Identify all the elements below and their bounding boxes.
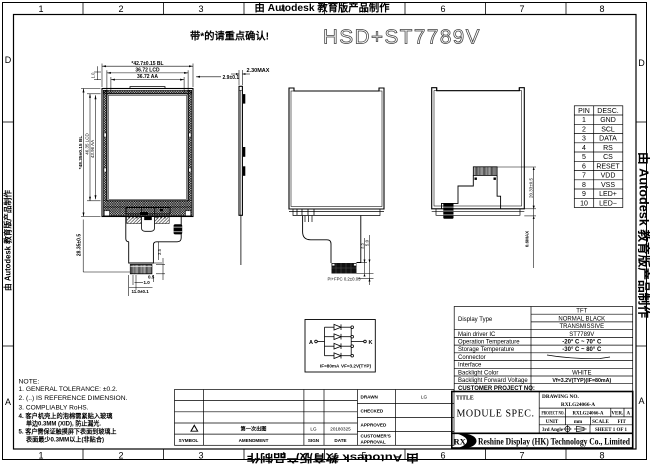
svg-text:RXLG24066-A: RXLG24066-A (573, 412, 604, 417)
svg-text:43.96 AA: 43.96 AA (90, 140, 95, 158)
svg-text:RX: RX (454, 436, 467, 446)
svg-text:A: A (5, 397, 11, 407)
svg-text:DRAWN: DRAWN (361, 395, 379, 400)
svg-text:第一次出图: 第一次出图 (241, 425, 267, 433)
svg-text:0.6MAX: 0.6MAX (525, 231, 530, 247)
svg-text:CS: CS (603, 154, 613, 161)
svg-text:6: 6 (440, 4, 445, 14)
svg-text:RXLG24066-A: RXLG24066-A (561, 402, 595, 408)
svg-text:APPROVED: APPROVED (361, 422, 387, 427)
svg-text:SCALE: SCALE (592, 420, 609, 425)
svg-text:CUSTOMER'S: CUSTOMER'S (361, 434, 391, 439)
svg-text:A: A (626, 412, 630, 417)
svg-text:3: 3 (198, 4, 203, 14)
svg-text:K: K (369, 340, 373, 346)
svg-text:9: 9 (582, 191, 586, 198)
svg-text:2.30MAX: 2.30MAX (247, 68, 270, 74)
svg-text:Display Type: Display Type (458, 317, 493, 323)
svg-text:7: 7 (519, 451, 524, 461)
svg-text:SIGN: SIGN (308, 438, 320, 443)
svg-text:11.0±0.1: 11.0±0.1 (132, 289, 150, 294)
svg-text:3: 3 (582, 136, 586, 143)
svg-text:-30° C ~ 80° C: -30° C ~ 80° C (562, 347, 602, 353)
svg-text:Reshine Display (HK) Technolog: Reshine Display (HK) Technology Co., Lim… (478, 436, 630, 446)
svg-text:3.5: 3.5 (157, 248, 162, 255)
svg-text:NORMAL BLACK: NORMAL BLACK (558, 316, 605, 322)
svg-text:表面最少0.3MM以上(非贴合): 表面最少0.3MM以上(非贴合) (26, 434, 104, 443)
svg-text:由 Autodesk 教育版产品制作: 由 Autodesk 教育版产品制作 (255, 1, 390, 14)
svg-text:1.0: 1.0 (91, 72, 96, 78)
svg-text:由 Autodesk 教育版产品制作: 由 Autodesk 教育版产品制作 (246, 451, 419, 464)
svg-text:mm: mm (574, 420, 583, 425)
svg-text:8: 8 (599, 4, 604, 14)
svg-text:46.35 LCD: 46.35 LCD (85, 132, 90, 154)
svg-text:TFT: TFT (576, 309, 587, 315)
svg-text:2. (..) IS REFERENCE DIMENSION: 2. (..) IS REFERENCE DIMENSION. (19, 395, 128, 402)
svg-text:CHECKED: CHECKED (361, 408, 384, 413)
svg-text:20180325: 20180325 (330, 426, 351, 431)
svg-text:1. GENERAL TOLERANCE: ±0.2.: 1. GENERAL TOLERANCE: ±0.2. (19, 386, 118, 393)
svg-text:WHITE: WHITE (572, 370, 591, 376)
svg-text:Interface: Interface (458, 363, 482, 369)
svg-text:VER.: VER. (611, 412, 624, 417)
svg-text:5.0: 5.0 (364, 239, 369, 246)
svg-text:D: D (5, 55, 12, 65)
svg-text:由 Autodesk 教育版产品制作: 由 Autodesk 教育版产品制作 (637, 152, 650, 318)
svg-text:Backlight Color: Backlight Color (458, 370, 498, 376)
svg-text:VF=3.2V(TYP): VF=3.2V(TYP) (341, 364, 371, 369)
svg-text:0.5: 0.5 (148, 275, 155, 280)
svg-text:SHEET 1 OF 1: SHEET 1 OF 1 (595, 428, 628, 433)
svg-text:MODULE SPEC.: MODULE SPEC. (457, 408, 535, 420)
svg-text:GND: GND (600, 117, 616, 124)
svg-text:6: 6 (440, 451, 445, 461)
svg-text:带*的请重点确认!: 带*的请重点确认! (190, 30, 269, 43)
svg-text:A: A (309, 340, 313, 346)
svg-text:1.0: 1.0 (144, 280, 151, 285)
svg-text:LED+: LED+ (599, 191, 617, 198)
svg-text:*42.7±0.15 BL: *42.7±0.15 BL (131, 61, 163, 67)
svg-text:1: 1 (38, 4, 43, 14)
svg-text:SCL: SCL (601, 126, 615, 133)
svg-text:2: 2 (582, 126, 586, 133)
svg-text:Main driver IC: Main driver IC (458, 332, 496, 338)
svg-text:2: 2 (118, 4, 123, 14)
svg-text:36.72 AA: 36.72 AA (137, 74, 158, 80)
svg-text:PROJECT NO.: PROJECT NO. (542, 412, 565, 417)
svg-text:20.33±0.5: 20.33±0.5 (529, 178, 534, 198)
svg-text:Vf=3.2V(TYP)(IF=80mA): Vf=3.2V(TYP)(IF=80mA) (552, 378, 611, 384)
svg-text:28.35±0.5: 28.35±0.5 (77, 234, 83, 256)
svg-text:D: D (638, 58, 645, 68)
svg-text:APPROVAL: APPROVAL (361, 440, 386, 445)
svg-text:5. 客户需保证触摸屏下表面到玻璃上: 5. 客户需保证触摸屏下表面到玻璃上 (19, 427, 118, 436)
svg-text:3: 3 (198, 451, 203, 461)
svg-text:LG: LG (310, 426, 317, 431)
svg-text:RESET: RESET (596, 163, 620, 170)
svg-text:TITLE: TITLE (456, 396, 474, 402)
svg-text:LED−: LED− (599, 200, 617, 207)
svg-text:RS: RS (603, 145, 613, 152)
svg-text:NOTE:: NOTE: (19, 378, 40, 385)
svg-text:由 Autodesk 教育版产品制作: 由 Autodesk 教育版产品制作 (3, 190, 13, 291)
svg-text:36.72 LCD: 36.72 LCD (135, 67, 160, 73)
svg-text:1: 1 (582, 117, 586, 124)
svg-text:7: 7 (582, 173, 586, 180)
svg-text:3. COMPLIABLY RoHS.: 3. COMPLIABLY RoHS. (19, 405, 89, 412)
svg-text:AMENDMENT: AMENDMENT (239, 438, 269, 443)
svg-text:Operation Temperature: Operation Temperature (458, 340, 520, 346)
svg-text:PI+FPC 0.2±0.03: PI+FPC 0.2±0.03 (327, 277, 361, 282)
svg-text:4: 4 (582, 145, 586, 152)
svg-text:Connector: Connector (458, 355, 486, 361)
svg-text:4. 客户机壳上的泡棉需紧贴入玻璃: 4. 客户机壳上的泡棉需紧贴入玻璃 (19, 411, 114, 420)
svg-text:LG: LG (421, 395, 428, 400)
svg-text:10: 10 (580, 200, 588, 207)
svg-text:2: 2 (118, 451, 123, 461)
svg-text:ST7789V: ST7789V (569, 332, 594, 338)
svg-text:IF=80mA: IF=80mA (320, 364, 340, 369)
svg-text:8: 8 (599, 451, 604, 461)
svg-text:VSS: VSS (601, 182, 615, 189)
svg-text:*48.35±0.15 BL: *48.35±0.15 BL (78, 136, 84, 170)
svg-text:7: 7 (519, 4, 524, 14)
svg-text:FIT: FIT (618, 420, 627, 425)
svg-text:5: 5 (582, 154, 586, 161)
svg-text:Backlight Forward Voltage: Backlight Forward Voltage (458, 378, 528, 384)
svg-text:Storage Temperature: Storage Temperature (458, 347, 515, 353)
svg-text:2.9±0.1: 2.9±0.1 (223, 75, 240, 81)
svg-text:DATE: DATE (334, 438, 346, 443)
svg-text:3rd Angle: 3rd Angle (542, 428, 564, 433)
svg-text:A: A (638, 396, 644, 406)
svg-text:HSD+ST7789V: HSD+ST7789V (323, 26, 481, 49)
svg-text:8: 8 (582, 182, 586, 189)
svg-text:DRAWING NO.: DRAWING NO. (542, 394, 579, 400)
svg-text:DATA: DATA (599, 136, 617, 143)
svg-text:SYMBOL: SYMBOL (179, 438, 199, 443)
svg-text:6: 6 (582, 163, 586, 170)
svg-text:UNIT: UNIT (546, 420, 559, 425)
svg-text:-20° C ~ 70° C: -20° C ~ 70° C (562, 340, 602, 346)
svg-text:VDD: VDD (601, 173, 616, 180)
svg-text:DESC.: DESC. (597, 108, 618, 115)
svg-text:单边0.3MM (XID), 防止漏光.: 单边0.3MM (XID), 防止漏光. (26, 418, 101, 427)
svg-text:1: 1 (38, 451, 43, 461)
svg-text:PIN: PIN (578, 108, 590, 115)
svg-text:TRANSMISSIVE: TRANSMISSIVE (559, 324, 604, 330)
